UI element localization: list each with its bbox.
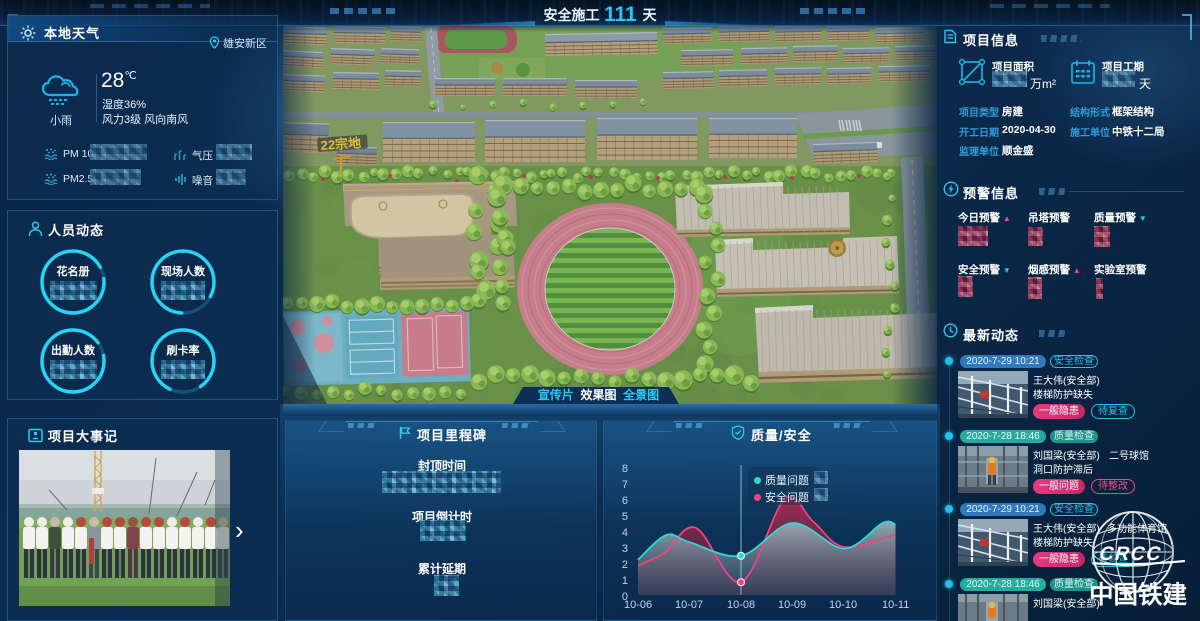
svg-text:中国铁建: 中国铁建 xyxy=(1089,581,1187,609)
svg-text:CRCC: CRCC xyxy=(1097,543,1165,565)
